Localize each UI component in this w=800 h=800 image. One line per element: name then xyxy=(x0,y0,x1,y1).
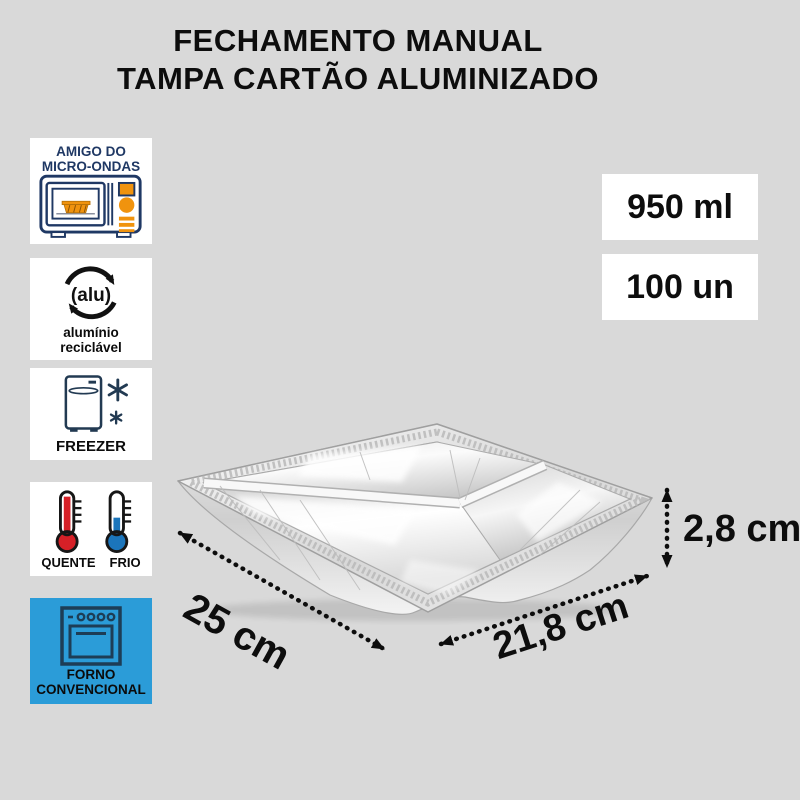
badge-microwave-safe: AMIGO DO MICRO-ONDAS xyxy=(30,138,152,244)
microwave-label-line1: AMIGO DO xyxy=(42,144,140,159)
badge-hot-cold: QUENTE FRIO xyxy=(30,482,152,576)
product-infographic: FECHAMENTO MANUAL TAMPA CARTÃO ALUMINIZA… xyxy=(0,0,800,800)
freezer-icon xyxy=(41,374,141,436)
microwave-label-line2: MICRO-ONDAS xyxy=(42,159,140,174)
thermometer-cold-icon xyxy=(107,491,131,551)
conventional-oven-icon xyxy=(53,605,129,667)
badge-conventional-oven: FORNO CONVENCIONAL xyxy=(30,598,152,704)
badge-recyclable-aluminium: (alu) alumínio reciclável xyxy=(30,258,152,360)
cold-label: FRIO xyxy=(110,555,141,570)
oven-label-line1: FORNO xyxy=(36,667,146,682)
height-dimension-label: 2,8 cm xyxy=(683,508,800,551)
alu-label-line1: alumínio xyxy=(60,325,122,340)
page-title: FECHAMENTO MANUAL TAMPA CARTÃO ALUMINIZA… xyxy=(0,22,716,98)
oven-label-line2: CONVENCIONAL xyxy=(36,682,146,697)
title-line-2: TAMPA CARTÃO ALUMINIZADO xyxy=(0,60,716,98)
hot-label: QUENTE xyxy=(41,555,95,570)
spec-quantity: 100 un xyxy=(602,254,758,320)
thermometers-icon xyxy=(36,489,146,553)
badge-freezer: FREEZER xyxy=(30,368,152,460)
thermometer-hot-icon xyxy=(57,491,81,551)
alu-label-line2: reciclável xyxy=(60,340,122,355)
snowflake-large-icon xyxy=(109,379,126,399)
spec-volume: 950 ml xyxy=(602,174,758,240)
freezer-label: FREEZER xyxy=(56,438,126,455)
alu-symbol-text: (alu) xyxy=(71,285,111,306)
microwave-icon xyxy=(38,174,144,242)
recycle-alu-icon: (alu) xyxy=(55,263,127,325)
snowflake-small-icon xyxy=(111,411,121,423)
title-line-1: FECHAMENTO MANUAL xyxy=(0,22,716,60)
